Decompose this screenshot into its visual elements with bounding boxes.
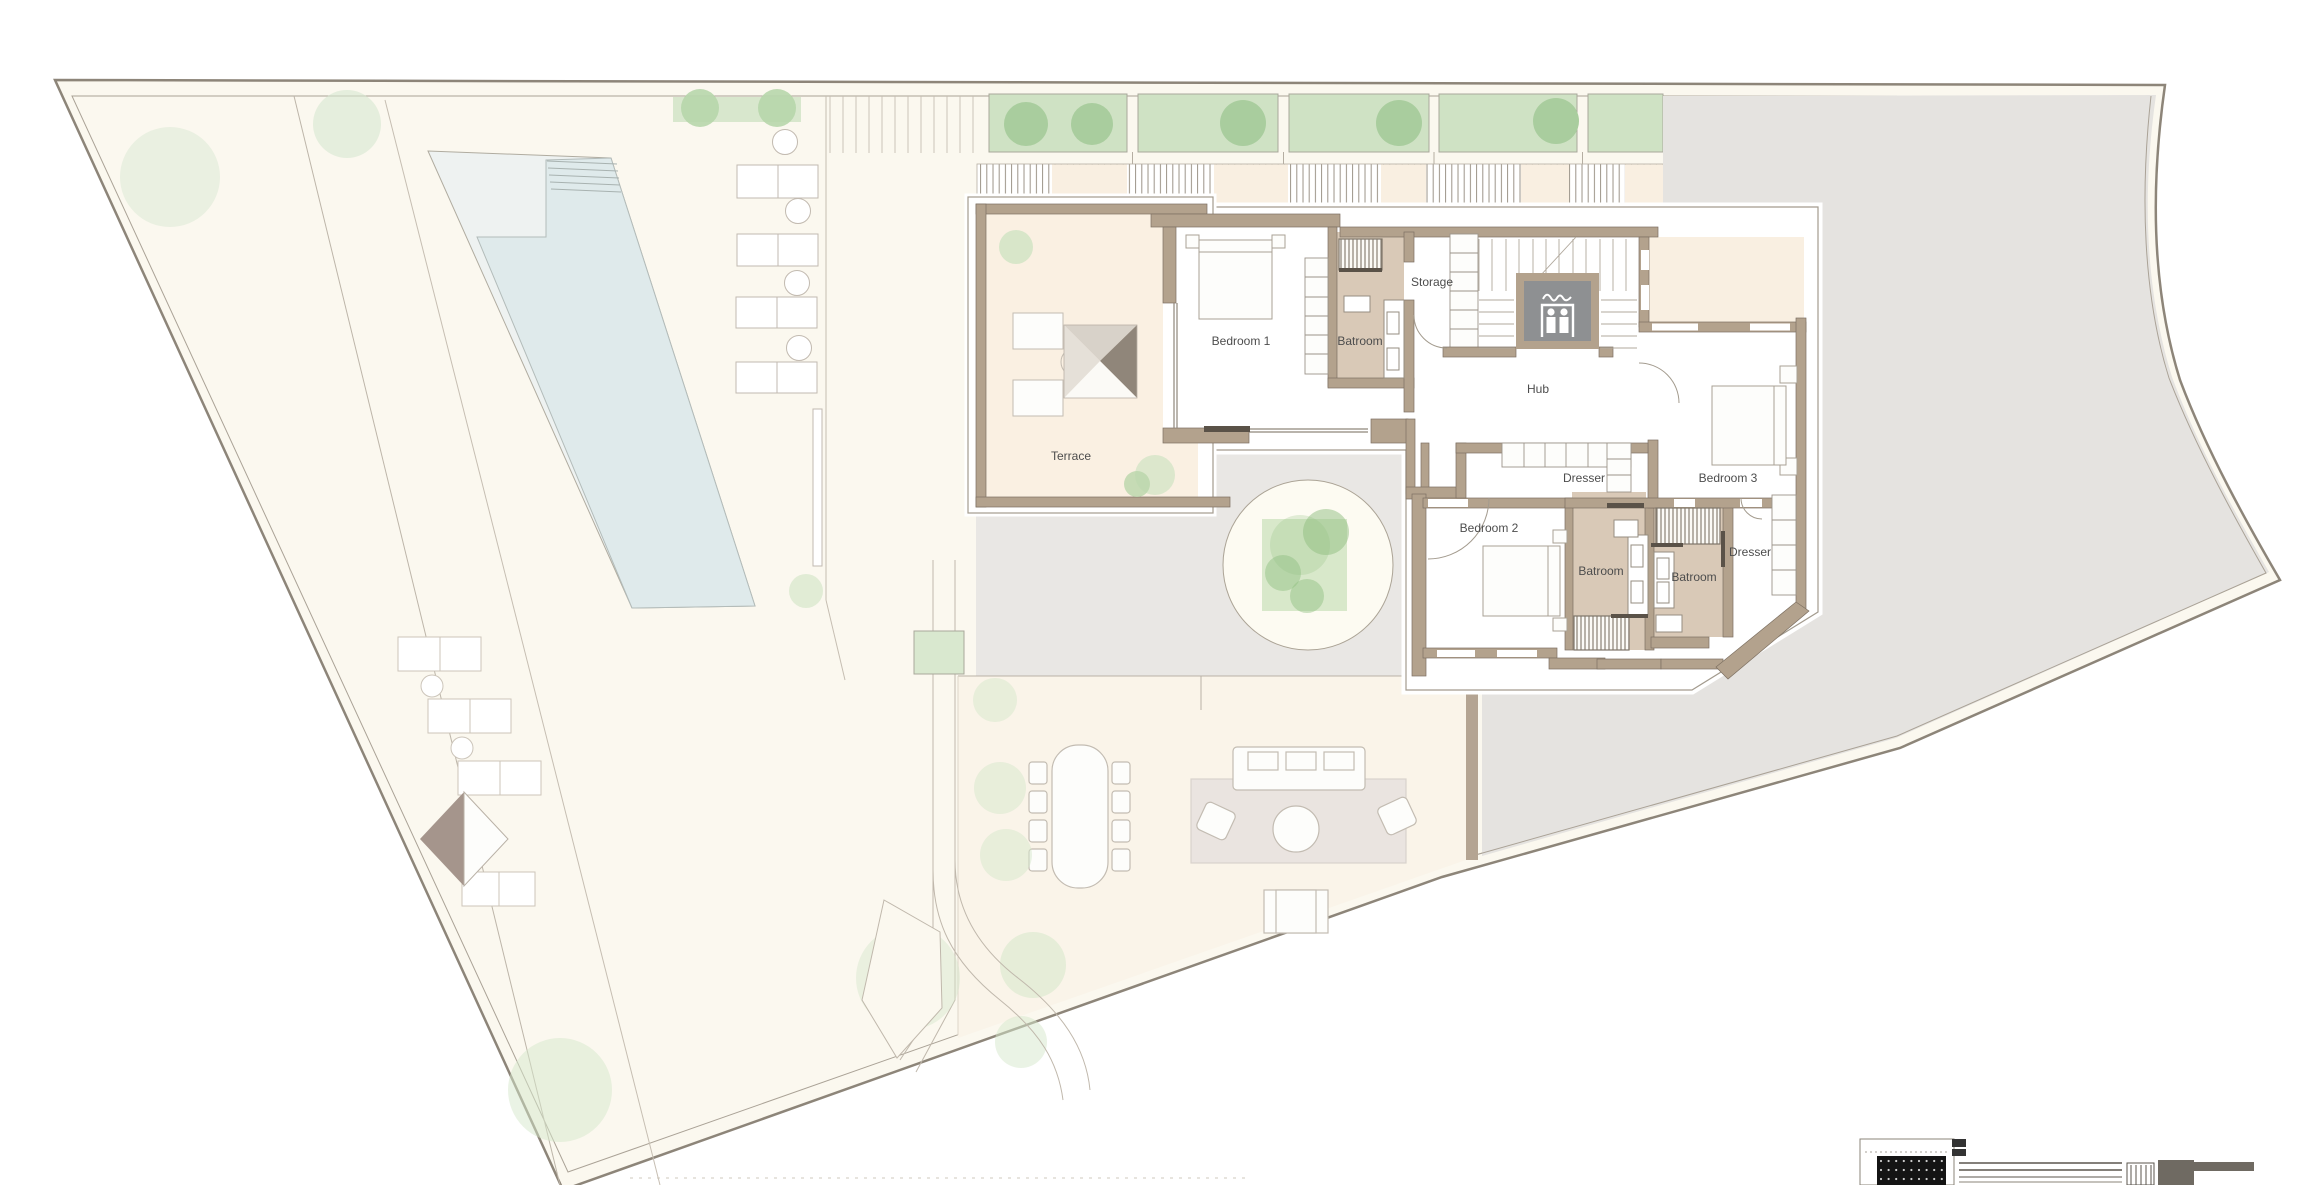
svg-text:Batroom: Batroom — [1337, 334, 1382, 348]
svg-text:Bedroom 1: Bedroom 1 — [1212, 334, 1271, 348]
svg-text:Batroom: Batroom — [1578, 564, 1623, 578]
svg-text:Terrace: Terrace — [1051, 449, 1091, 463]
svg-text:Dresser: Dresser — [1563, 471, 1605, 485]
svg-text:Bedroom 2: Bedroom 2 — [1460, 521, 1519, 535]
svg-text:Batroom: Batroom — [1671, 570, 1716, 584]
svg-text:Hub: Hub — [1527, 382, 1549, 396]
svg-text:Dresser: Dresser — [1729, 545, 1771, 559]
svg-text:Bedroom 3: Bedroom 3 — [1699, 471, 1758, 485]
svg-text:Storage: Storage — [1411, 275, 1453, 289]
